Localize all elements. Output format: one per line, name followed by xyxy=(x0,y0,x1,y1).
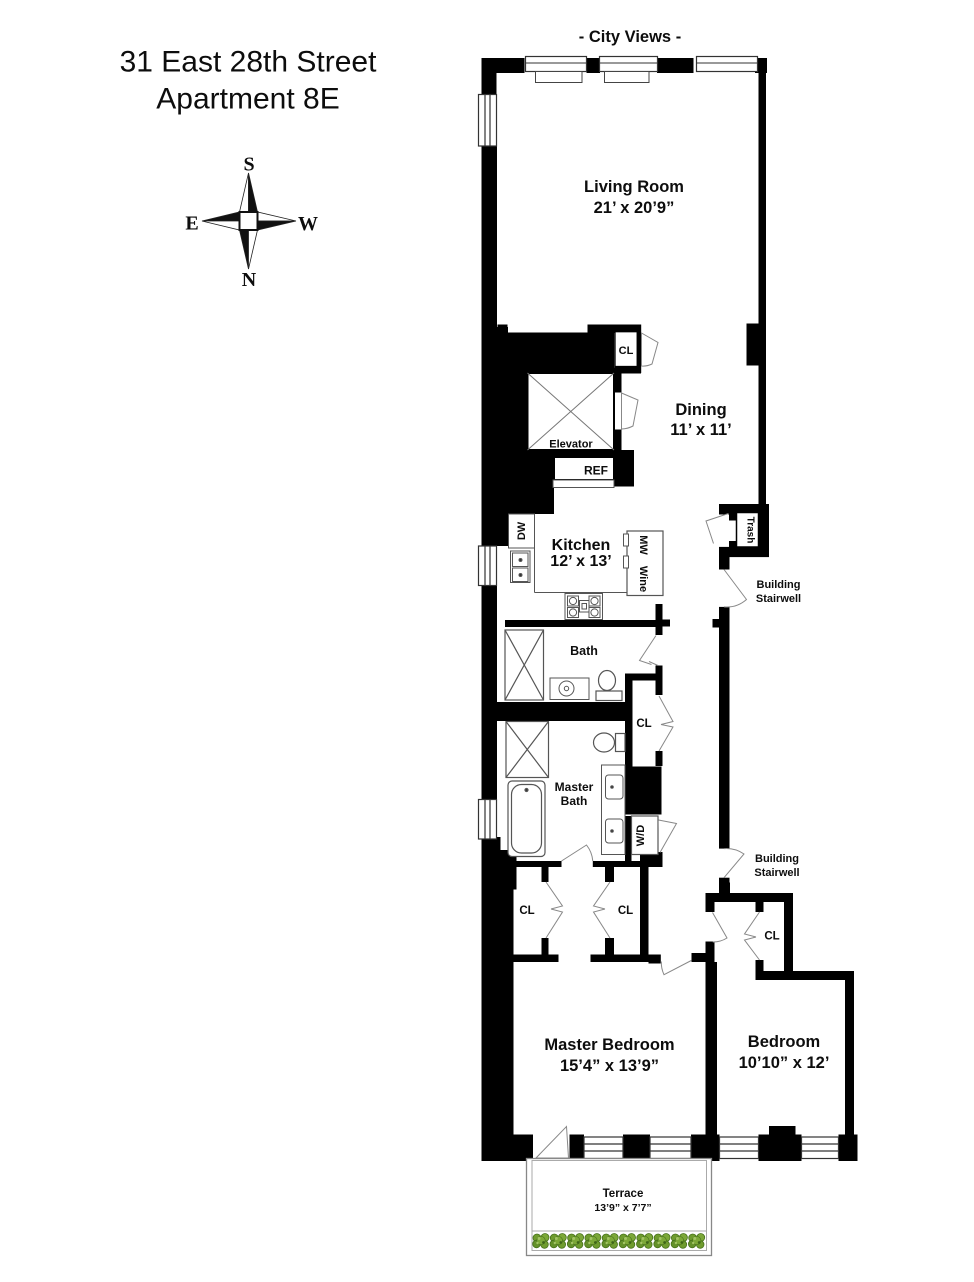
svg-text:Master Bedroom: Master Bedroom xyxy=(544,1036,674,1054)
svg-text:E: E xyxy=(185,213,198,235)
svg-text:CL: CL xyxy=(519,905,534,917)
svg-text:REF: REF xyxy=(584,464,608,478)
svg-text:CL: CL xyxy=(619,345,634,357)
svg-text:CL: CL xyxy=(636,718,651,730)
svg-text:N: N xyxy=(242,269,257,291)
svg-text:Building: Building xyxy=(757,579,801,591)
svg-text:Building: Building xyxy=(755,853,799,865)
svg-text:Bath: Bath xyxy=(561,794,588,808)
svg-text:Trash: Trash xyxy=(745,517,756,544)
svg-text:Bath: Bath xyxy=(570,644,598,658)
svg-text:13’9” x 7’7”: 13’9” x 7’7” xyxy=(594,1202,651,1214)
svg-text:CL: CL xyxy=(618,905,633,917)
svg-text:Elevator: Elevator xyxy=(549,439,593,451)
svg-text:Wine: Wine xyxy=(637,566,649,592)
svg-text:31 East 28th Street: 31 East 28th Street xyxy=(120,46,377,79)
svg-text:MW: MW xyxy=(637,535,649,555)
svg-text:S: S xyxy=(243,154,254,176)
svg-text:Bedroom: Bedroom xyxy=(748,1033,820,1051)
svg-text:11’ x 11’: 11’ x 11’ xyxy=(670,421,732,439)
svg-text:Kitchen: Kitchen xyxy=(552,537,611,554)
svg-text:Living Room: Living Room xyxy=(584,178,684,196)
svg-text:12’ x 13’: 12’ x 13’ xyxy=(550,553,611,570)
svg-text:- City Views -: - City Views - xyxy=(579,28,681,46)
svg-text:15’4” x 13’9”: 15’4” x 13’9” xyxy=(560,1057,659,1075)
svg-text:Apartment 8E: Apartment 8E xyxy=(156,82,339,115)
svg-text:10’10” x 12’: 10’10” x 12’ xyxy=(739,1054,830,1072)
svg-text:CL: CL xyxy=(764,931,779,943)
svg-text:Terrace: Terrace xyxy=(603,1188,644,1200)
svg-text:W: W xyxy=(298,213,318,235)
svg-text:DW: DW xyxy=(516,521,528,540)
svg-text:21’ x 20’9”: 21’ x 20’9” xyxy=(594,199,675,217)
svg-text:Stairwell: Stairwell xyxy=(756,593,801,605)
svg-text:Dining: Dining xyxy=(675,401,726,419)
svg-text:Master: Master xyxy=(555,780,594,794)
svg-text:Stairwell: Stairwell xyxy=(754,867,799,879)
svg-text:W/D: W/D xyxy=(635,825,647,846)
